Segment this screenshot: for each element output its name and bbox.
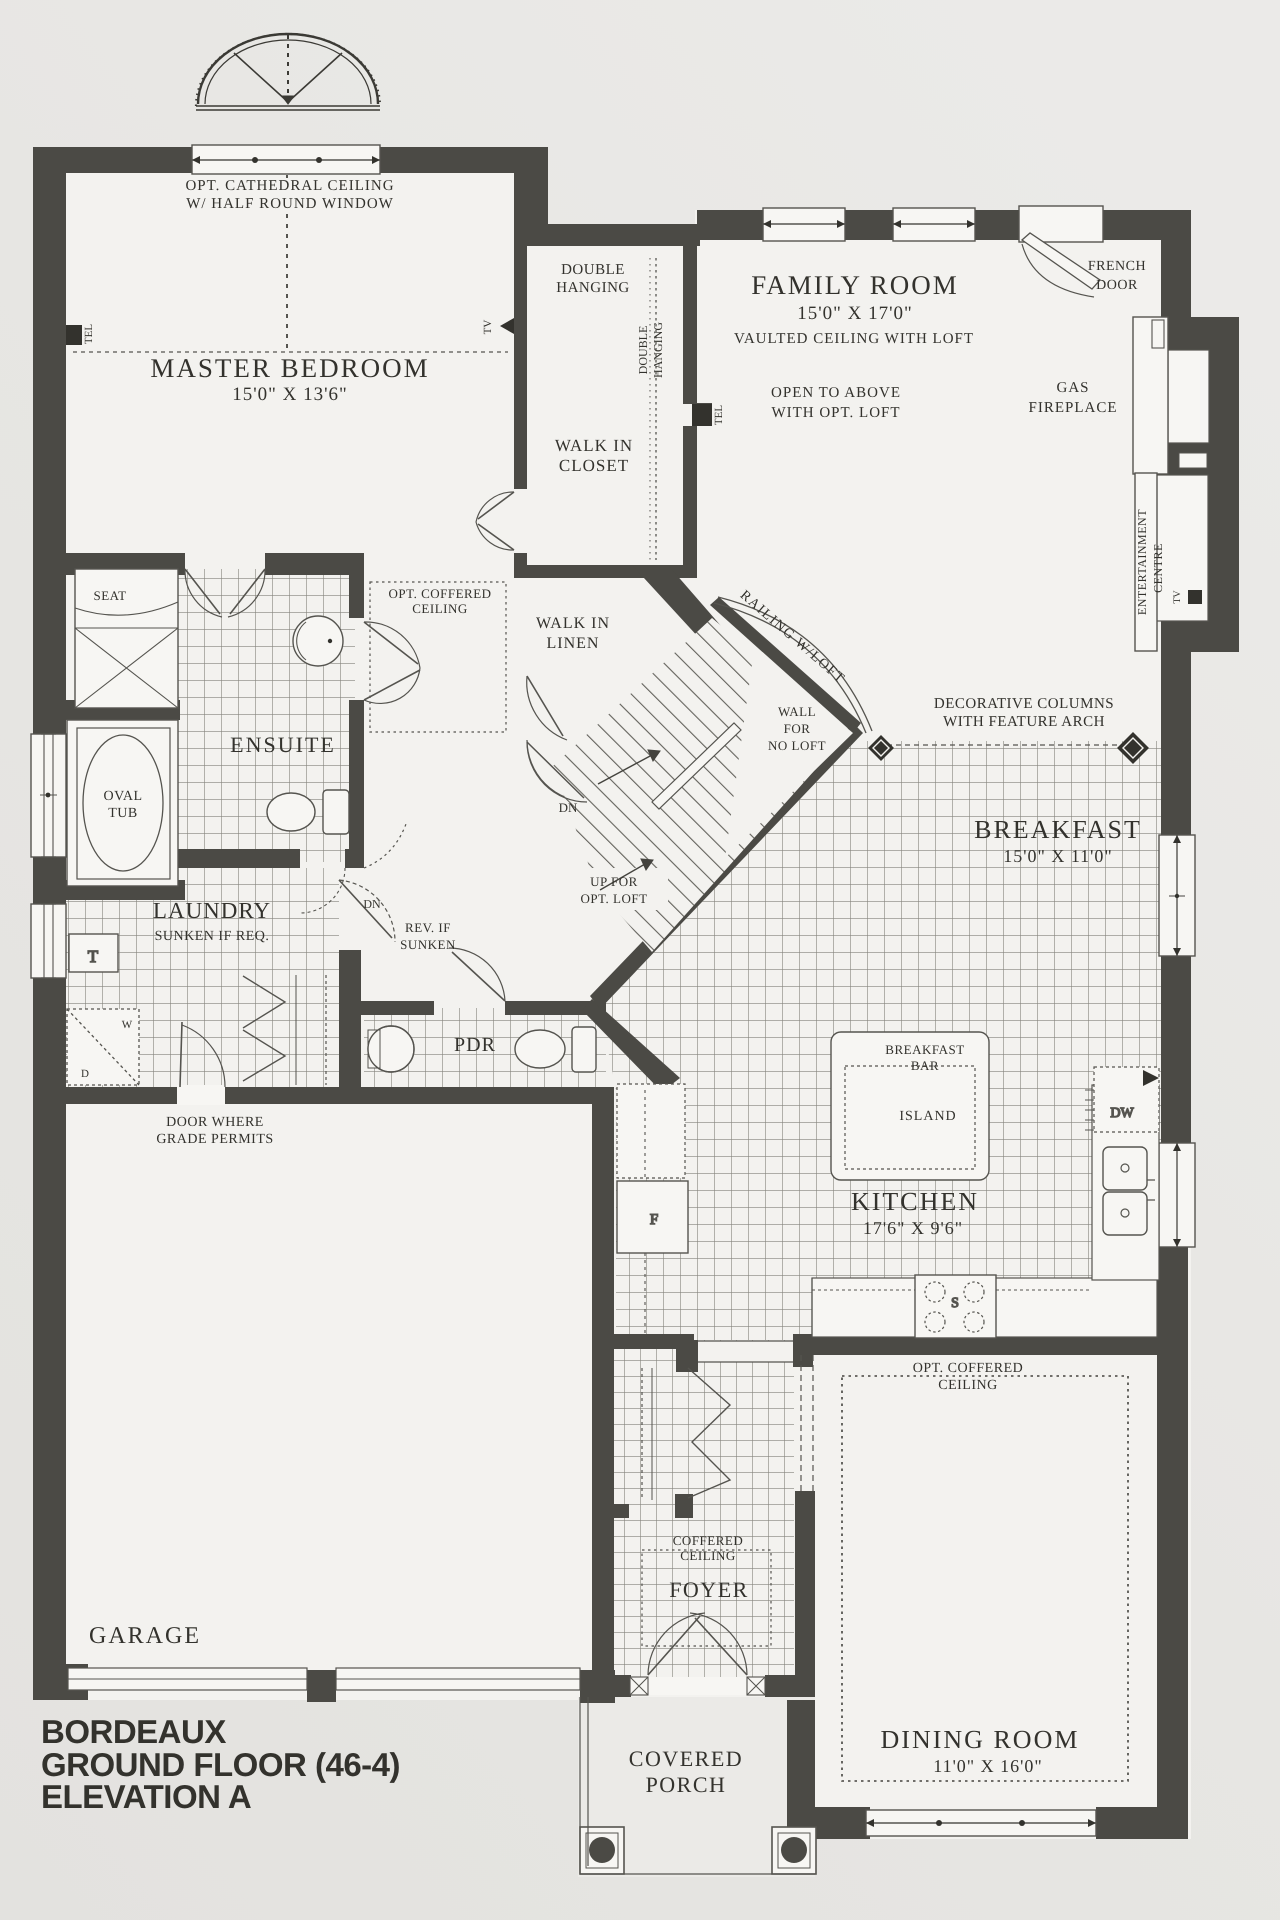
svg-text:PORCH: PORCH [646,1772,727,1797]
svg-text:ELEVATION A: ELEVATION A [41,1778,251,1815]
svg-text:NO LOFT: NO LOFT [768,738,826,753]
svg-text:15'0" X 11'0": 15'0" X 11'0" [1003,846,1113,866]
svg-text:DOOR WHERE: DOOR WHERE [166,1115,264,1130]
svg-text:CEILING: CEILING [938,1378,998,1393]
svg-text:DN: DN [559,800,578,815]
svg-text:FAMILY ROOM: FAMILY ROOM [751,270,959,300]
svg-text:WALL: WALL [778,704,816,719]
svg-text:FOR: FOR [784,721,811,736]
svg-text:DW: DW [1110,1106,1134,1121]
svg-text:TUB: TUB [108,806,138,821]
svg-text:BAR: BAR [911,1058,939,1073]
svg-text:BREAKFAST: BREAKFAST [885,1042,964,1057]
svg-text:CLOSET: CLOSET [559,456,629,475]
svg-text:DN: DN [363,897,381,911]
svg-text:OVAL: OVAL [103,789,142,804]
svg-text:REV. IF: REV. IF [405,920,451,935]
svg-text:UP FOR: UP FOR [590,874,638,889]
svg-text:SUNKEN: SUNKEN [400,937,456,952]
svg-text:GARAGE: GARAGE [89,1623,201,1649]
svg-text:W: W [122,1019,133,1031]
svg-text:DOUBLE: DOUBLE [561,262,625,278]
svg-text:OPT. LOFT: OPT. LOFT [580,891,647,906]
svg-text:D: D [81,1068,89,1080]
svg-text:17'6" X 9'6": 17'6" X 9'6" [863,1218,963,1238]
svg-text:KITCHEN: KITCHEN [851,1187,979,1216]
svg-text:LINEN: LINEN [547,635,600,652]
svg-text:15'0" X 17'0": 15'0" X 17'0" [797,303,913,324]
svg-text:TEL: TEL [83,324,95,344]
svg-text:DECORATIVE COLUMNS: DECORATIVE COLUMNS [934,696,1114,712]
svg-text:BREAKFAST: BREAKFAST [974,815,1142,844]
svg-text:BORDEAUX: BORDEAUX [41,1713,226,1750]
svg-text:CENTRE: CENTRE [1151,543,1165,593]
svg-text:OPT. CATHEDRAL CEILING: OPT. CATHEDRAL CEILING [185,178,394,194]
svg-text:WALK IN: WALK IN [555,436,633,455]
svg-text:HANGING: HANGING [651,322,665,378]
svg-text:COVERED: COVERED [629,1746,743,1771]
svg-text:WITH OPT. LOFT: WITH OPT. LOFT [771,405,900,421]
svg-text:FIREPLACE: FIREPLACE [1028,400,1117,416]
svg-text:11'0" X 16'0": 11'0" X 16'0" [933,1756,1043,1776]
svg-text:CEILING: CEILING [680,1548,736,1563]
svg-text:LAUNDRY: LAUNDRY [153,898,271,923]
svg-text:HANGING: HANGING [556,280,630,296]
svg-text:DOOR: DOOR [1096,278,1138,293]
svg-text:ISLAND: ISLAND [899,1109,956,1124]
svg-text:CEILING: CEILING [412,601,468,616]
svg-text:ENTERTAINMENT: ENTERTAINMENT [1135,509,1149,615]
svg-text:DINING ROOM: DINING ROOM [881,1725,1080,1754]
svg-text:VAULTED CEILING WITH LOFT: VAULTED CEILING WITH LOFT [734,331,974,347]
svg-text:F: F [650,1212,658,1228]
svg-text:FRENCH: FRENCH [1088,259,1146,274]
svg-text:W/ HALF ROUND WINDOW: W/ HALF ROUND WINDOW [186,196,394,212]
svg-text:MASTER BEDROOM: MASTER BEDROOM [150,353,429,383]
svg-text:T: T [88,947,99,966]
svg-text:COFFERED: COFFERED [673,1533,743,1548]
svg-text:WALK IN: WALK IN [536,615,610,632]
svg-text:S: S [951,1296,959,1311]
svg-text:OPT. COFFERED: OPT. COFFERED [388,586,491,601]
svg-text:SUNKEN IF REQ.: SUNKEN IF REQ. [155,929,270,944]
svg-text:TV: TV [482,320,494,335]
svg-text:OPEN TO ABOVE: OPEN TO ABOVE [771,385,901,401]
svg-text:ENSUITE: ENSUITE [230,732,336,757]
svg-text:TEL: TEL [713,405,725,425]
svg-text:SEAT: SEAT [93,588,126,603]
svg-text:TV: TV [1172,590,1183,604]
svg-text:WITH FEATURE ARCH: WITH FEATURE ARCH [943,714,1105,730]
svg-text:PDR: PDR [454,1034,496,1056]
svg-text:15'0" X 13'6": 15'0" X 13'6" [232,384,348,405]
svg-text:DOUBLE: DOUBLE [636,326,650,375]
svg-text:FOYER: FOYER [669,1577,749,1602]
svg-text:GAS: GAS [1056,380,1089,396]
svg-text:OPT. COFFERED: OPT. COFFERED [913,1361,1023,1376]
svg-text:GRADE PERMITS: GRADE PERMITS [156,1132,273,1147]
